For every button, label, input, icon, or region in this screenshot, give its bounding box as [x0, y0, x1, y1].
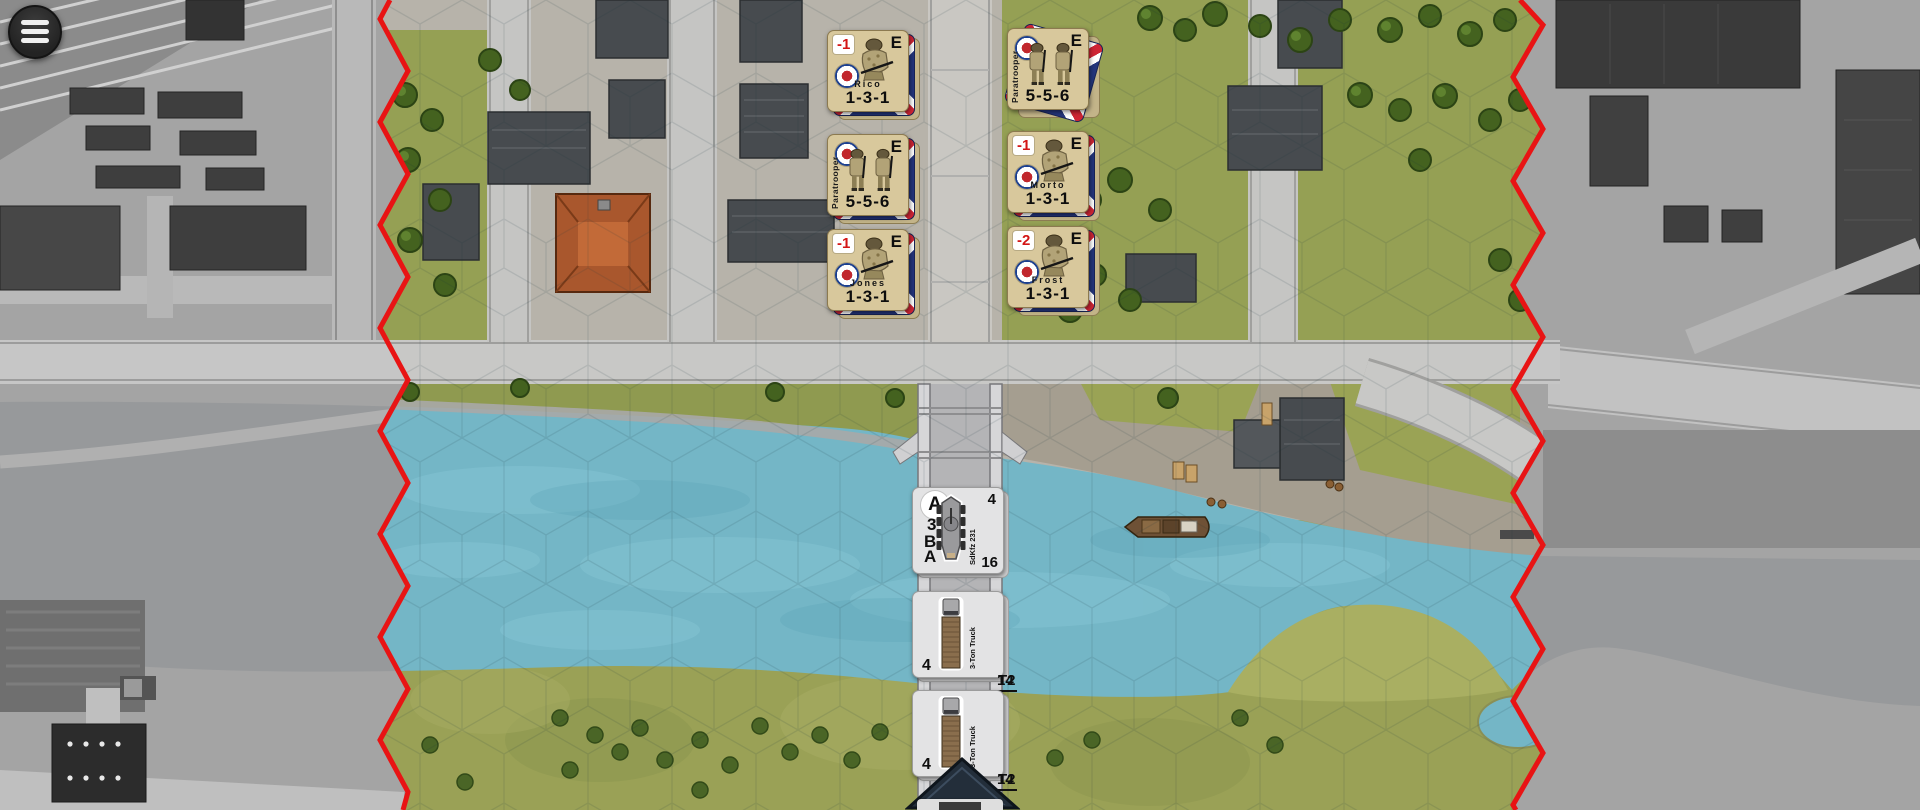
soldier-icon [1033, 138, 1077, 184]
unit-counter-frost[interactable]: -2 E Frost 1-3-1 [1007, 226, 1087, 306]
unit-counter-truck-1[interactable]: 4 T2 14 3-Ton Truck [912, 591, 1002, 676]
counter-value: 4 [922, 657, 931, 675]
unit-counter-morto[interactable]: -1 E Morto 1-3-1 [1007, 131, 1087, 211]
partial-counter-bottom[interactable] [917, 799, 1003, 810]
two-soldiers-icon [1025, 42, 1077, 88]
modifier-badge: -2 [1013, 231, 1034, 250]
armored-car-icon [934, 493, 968, 567]
unit-counter-paratrooper-right[interactable]: E Paratrooper 5-5-6 [1007, 28, 1087, 108]
soldier-icon [853, 37, 897, 83]
unit-counter-sdkfz-231[interactable]: A 3 B A 4 16 SdKfz 231 [912, 487, 1002, 572]
soldier-icon [1033, 233, 1077, 279]
two-soldiers-icon [845, 148, 897, 194]
unit-strength: 5-5-6 [828, 192, 908, 212]
counter-value: 4 [988, 491, 996, 508]
unit-strength: 1-3-1 [1008, 284, 1088, 304]
unit-strength: 1-3-1 [828, 88, 908, 108]
unit-counter-jones[interactable]: -1 E Jones 1-3-1 [827, 229, 907, 309]
modifier-badge: -1 [833, 35, 854, 54]
game-map[interactable] [0, 0, 1920, 810]
menu-button[interactable] [8, 5, 62, 59]
vehicle-name: 3-Ton Truck [968, 600, 977, 669]
soldier-icon [853, 236, 897, 282]
unit-strength: 1-3-1 [1008, 189, 1088, 209]
vehicle-name: SdKfz 231 [968, 496, 977, 565]
modifier-badge: -1 [833, 234, 854, 253]
unit-strength: 5-5-6 [1008, 86, 1088, 106]
modifier-badge: -1 [1013, 136, 1034, 155]
margin-building-bottom-left [52, 724, 146, 802]
counter-value: 16 [981, 554, 998, 571]
truck-icon [934, 597, 968, 671]
hex-grid [378, 0, 1548, 810]
unit-strength: 1-3-1 [828, 287, 908, 307]
wargame-map-screen: -1 E Rico 1-3-1 E Paratrooper [0, 0, 1920, 810]
unit-counter-rico[interactable]: -1 E Rico 1-3-1 [827, 30, 907, 110]
unit-counter-paratrooper-left[interactable]: E Paratrooper 5-5-6 [827, 134, 907, 214]
